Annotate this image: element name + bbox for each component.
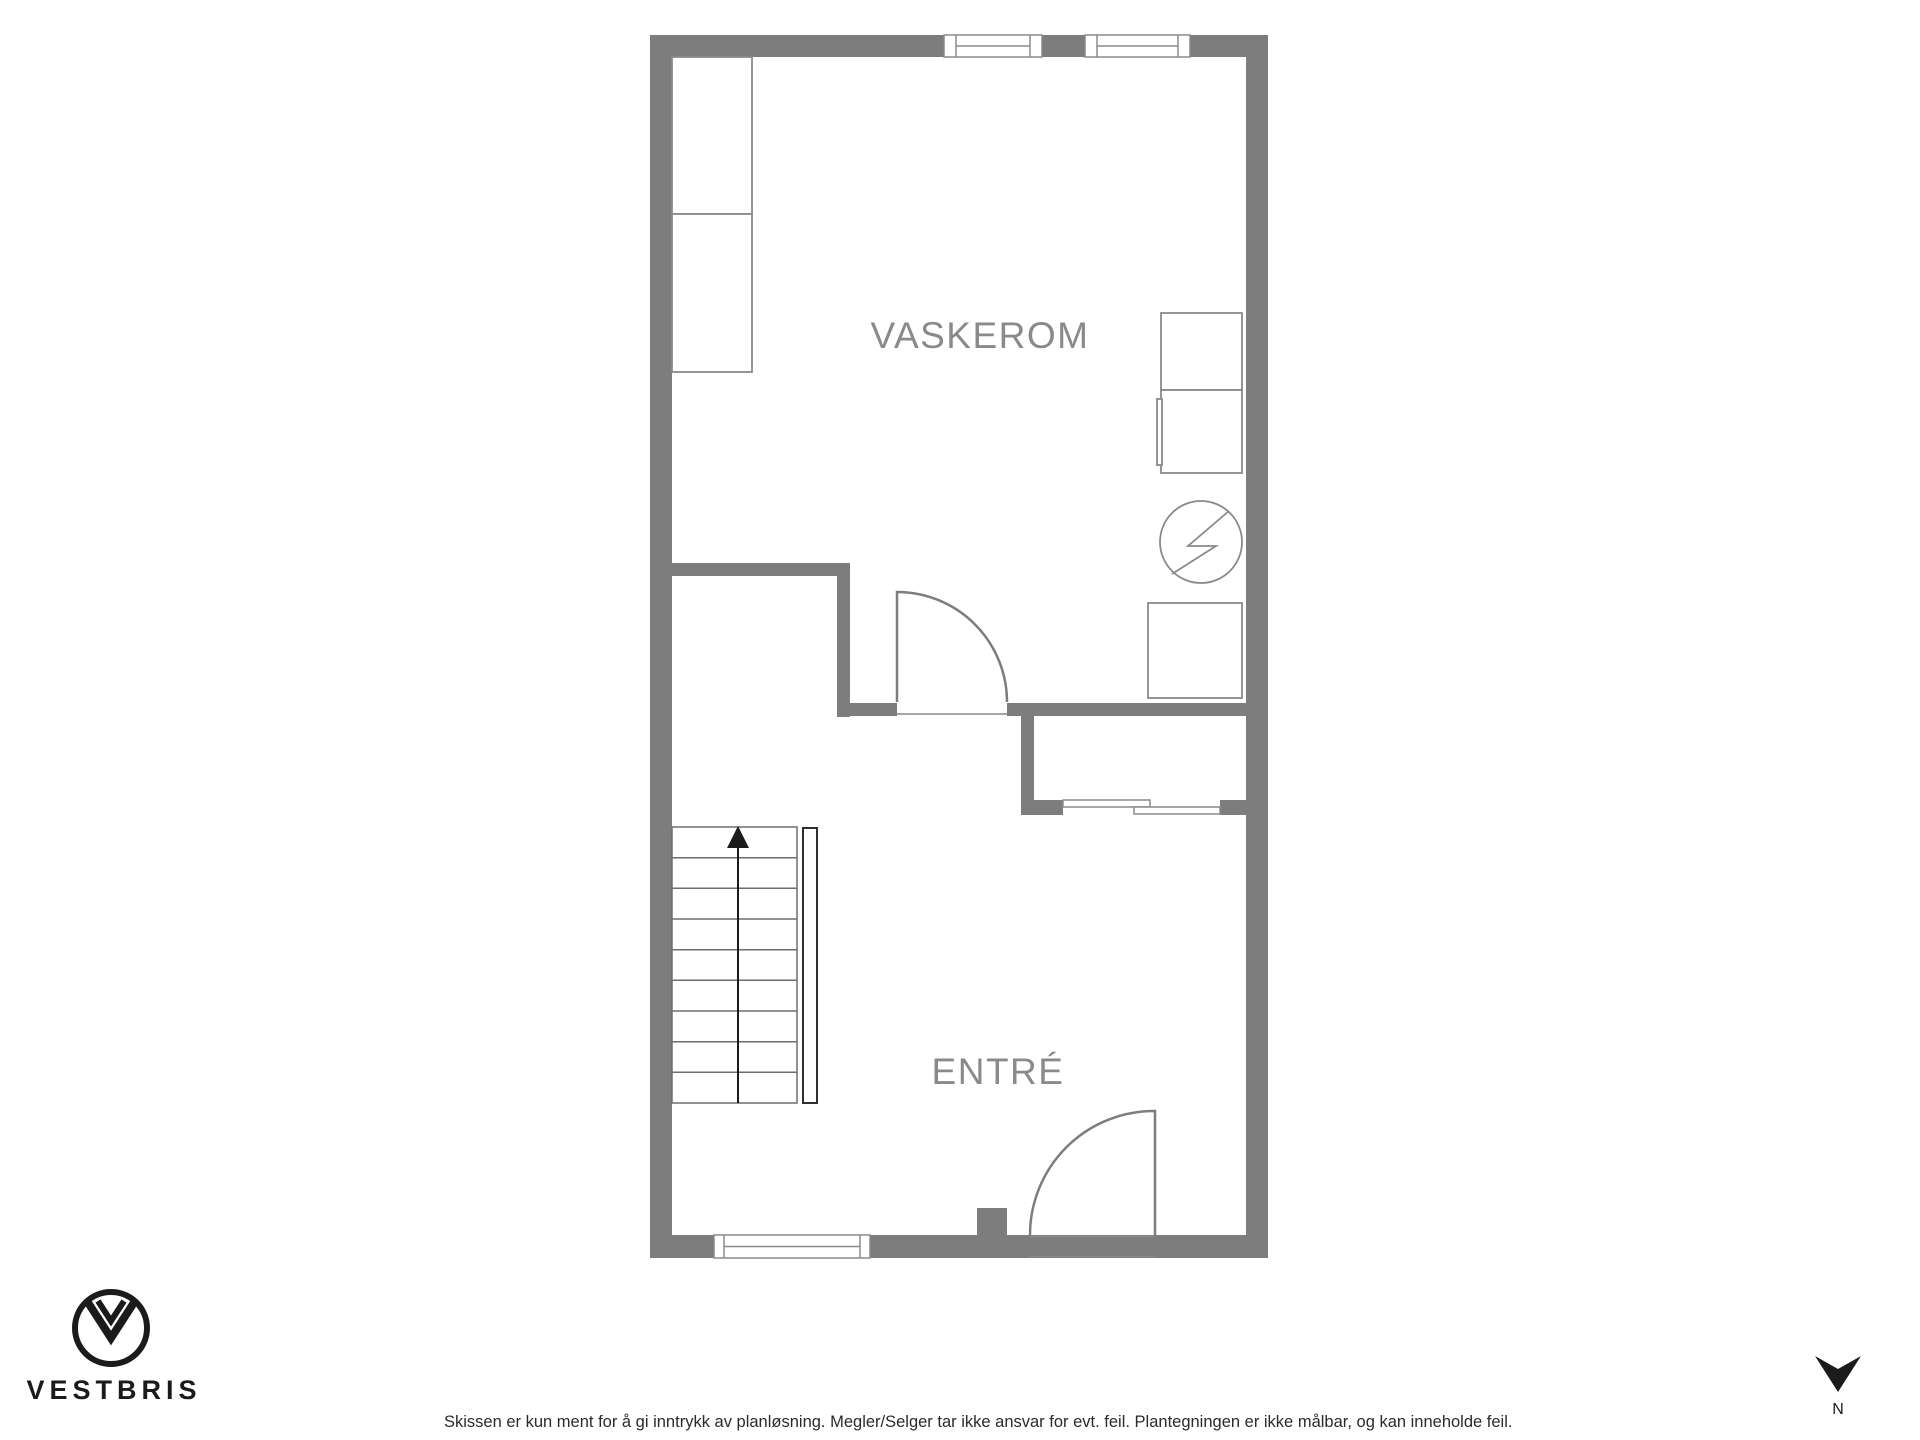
partition-wall-door-left [850,703,897,716]
washer-door-handle [1157,399,1162,465]
window-bottom [714,1235,870,1258]
sliding-window-alcove [1063,800,1220,814]
water-heater-icon [1160,501,1242,583]
alcove-bottom-wall-left [1021,800,1063,815]
brand-name: VESTBRIS [26,1375,201,1405]
room-label-entre: ENTRÉ [932,1051,1065,1092]
north-letter: N [1832,1401,1844,1418]
stairs [672,826,817,1103]
interior-door-swing [897,592,1007,702]
stair-handrail [803,828,817,1103]
room-label-vaskerom: VASKEROM [871,315,1090,356]
bench-cabinet [1148,603,1242,698]
window-top-1 [944,35,1042,57]
north-arrow-icon [1815,1356,1861,1392]
vestbris-logo-icon [75,1292,147,1364]
disclaimer-text: Skissen er kun ment for å gi inntrykk av… [444,1413,1512,1431]
partition-wall-vertical [837,563,850,717]
window-top-2 [1085,35,1190,57]
left-wall [650,35,672,1258]
floor-plan-page: VASKEROM ENTRÉ VESTBRIS Skissen er kun m… [0,0,1920,1440]
wardrobe-lower [672,214,752,372]
vestbris-logo: VESTBRIS [26,1292,201,1405]
entry-door-wall-stub [977,1208,1007,1235]
partition-wall-door-right [1007,703,1248,716]
entry-door-swing [1030,1111,1155,1235]
wardrobe-upper [672,57,752,214]
doors [897,592,1155,1235]
washer-unit-top [1161,313,1242,390]
stair-treads [672,827,797,1103]
partition-wall-horizontal-left [650,563,850,576]
alcove-bottom-wall-right [1220,800,1248,815]
fixtures [672,57,1242,698]
floor-plan-canvas: VASKEROM ENTRÉ VESTBRIS Skissen er kun m… [0,0,1920,1440]
right-wall [1246,35,1268,1258]
washer-unit-bottom [1161,390,1242,473]
north-compass: N [1815,1356,1861,1418]
